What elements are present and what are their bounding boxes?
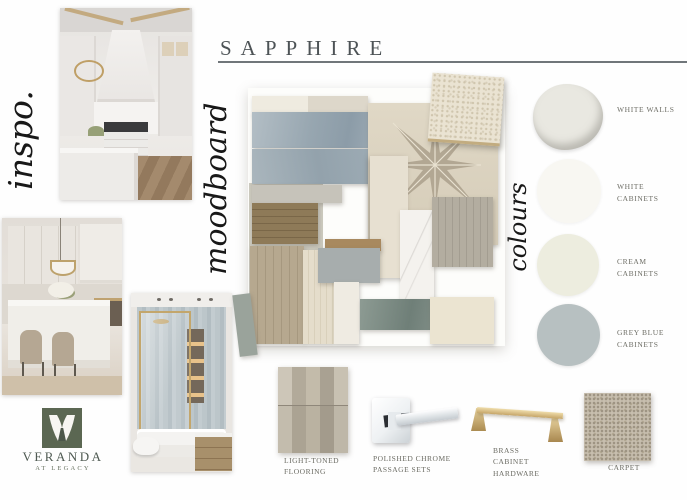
paint-blob-white-walls [533, 84, 603, 150]
swatch-blue-glazed-tile [252, 149, 385, 184]
kitchen1-island [60, 148, 138, 200]
kitchen2-hood [80, 224, 122, 283]
bathroom-toilet [133, 437, 159, 455]
kitchen1-range [104, 122, 148, 132]
swatch-blue-glazed-tile [252, 112, 385, 148]
bathroom-spotlight [157, 298, 161, 301]
inspo-photo-kitchen-island [2, 218, 122, 395]
kitchen2-stool [20, 330, 42, 364]
kitchen2-flowers [48, 282, 74, 298]
paint-blob-white-cabinets [537, 159, 601, 223]
swatch-marble-slab [400, 210, 434, 301]
veranda-logo-mark [42, 408, 82, 448]
kitchen2-pendant-light [50, 260, 76, 276]
kitchen1-chandelier [74, 60, 104, 82]
swatch-grey-paint-chip [318, 248, 380, 283]
bathroom-ceiling [131, 293, 232, 307]
swatch-light-oak-plank [250, 246, 304, 344]
carpet-sample-image [584, 393, 651, 461]
palette-label: WHITE CABINETS [617, 181, 675, 204]
swatch-grey-washed-wood [432, 197, 493, 267]
bathroom-spotlight [209, 298, 213, 301]
swatch-sage-tile [360, 299, 430, 330]
palette-label: GREY BLUE CABINETS [617, 327, 675, 350]
kitchen1-cabinet-light [162, 42, 174, 56]
kitchen1-cabinet-light [176, 42, 188, 56]
finish-label-brass-hardware: BRASS CABINET HARDWARE [493, 445, 549, 479]
kitchen1-range-hood [97, 30, 155, 102]
paint-blob-grey-blue-cabinets [537, 304, 600, 366]
kitchen2-floor [2, 376, 122, 395]
bathroom-spotlight [197, 298, 201, 301]
swatch-white-tile [334, 282, 359, 344]
section-label-inspo: inspo. [0, 78, 42, 202]
swatch-stained-oak [252, 203, 318, 244]
palette-label: CREAM CABINETS [617, 256, 675, 279]
palette-label: WHITE WALLS [617, 104, 675, 116]
flooring-sample-image [278, 367, 348, 453]
finish-label-passage-sets: POLISHED CHROME PASSAGE SETS [373, 453, 457, 476]
logo-tagline: AT LEGACY [18, 465, 108, 472]
paint-blob-cream-cabinets [537, 234, 599, 296]
finish-label-carpet: CARPET [599, 462, 649, 473]
bathroom-glass-panel [139, 311, 191, 441]
bathroom-spotlight [169, 298, 173, 301]
title-underline [218, 61, 687, 63]
section-label-colours: colours [503, 168, 533, 286]
inspo-photo-kitchen-hood [60, 8, 192, 200]
section-label-moodboard: moodboard [199, 117, 235, 275]
kitchen2-stool [52, 332, 74, 366]
kitchen1-plant [88, 126, 104, 136]
kitchen1-cabinets-left [60, 36, 96, 136]
veranda-tulip-icon [42, 408, 82, 448]
brass-pull-bar [477, 407, 563, 419]
flooring-shade [278, 406, 348, 453]
inspo-photo-bathroom [131, 293, 232, 472]
swatch-grey-tile [252, 185, 342, 203]
kitchen2-pendant-cord [60, 218, 61, 262]
finish-label-flooring: LIGHT-TONED FLOORING [284, 455, 342, 478]
swatch-cream-tile [430, 297, 494, 344]
swatch-pearl-texture [428, 73, 505, 147]
brass-pull-foot [548, 418, 563, 442]
kitchen2-glass-cabinets [8, 226, 78, 286]
logo-brand-name: VERANDA [18, 449, 108, 465]
page-title: SAPPHIRE [220, 36, 391, 61]
bathroom-vanity [195, 433, 232, 471]
moodboard-page: SAPPHIRE inspo. moodboard colours [0, 0, 687, 500]
